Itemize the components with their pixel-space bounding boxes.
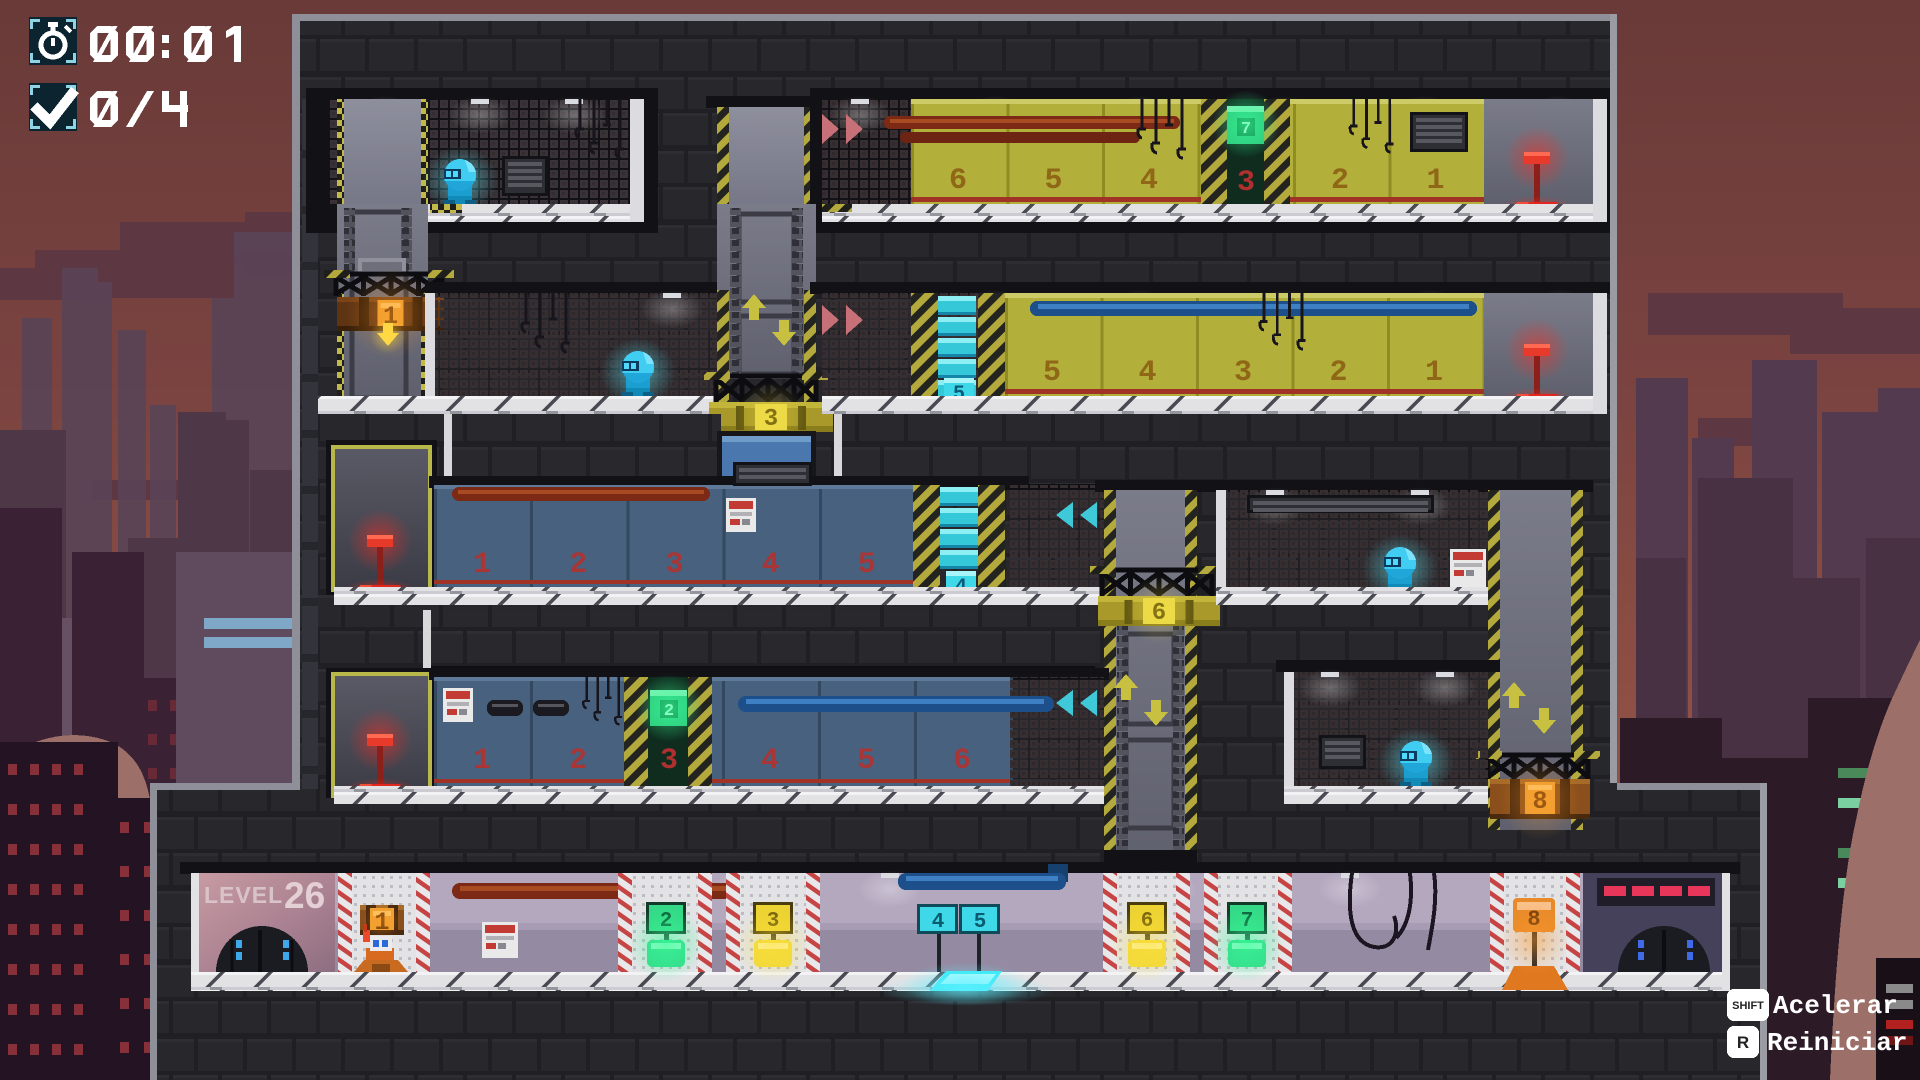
svg-text:1: 1 [473,744,491,778]
svg-text:4: 4 [762,548,780,582]
svg-text:5: 5 [858,548,876,582]
svg-text:3: 3 [1237,166,1255,200]
svg-text:26: 26 [284,875,325,916]
svg-text:4: 4 [1140,164,1158,198]
svg-text:SHIFT: SHIFT [1732,1000,1764,1012]
svg-text:5: 5 [857,744,875,778]
svg-text:4: 4 [761,744,779,778]
svg-text:3: 3 [660,744,678,778]
svg-text:R: R [1737,1033,1749,1052]
svg-text:6: 6 [953,744,971,778]
svg-text:3: 3 [665,548,683,582]
svg-text:4: 4 [1138,356,1156,390]
svg-text:Acelerar: Acelerar [1773,991,1898,1021]
svg-text:4: 4 [932,911,945,934]
svg-text:5: 5 [1044,164,1062,198]
svg-text:LEVEL: LEVEL [204,882,283,908]
svg-text:1: 1 [1426,164,1444,198]
svg-text:5: 5 [1043,356,1061,390]
svg-text:5: 5 [974,911,987,934]
svg-text:2: 2 [1331,164,1349,198]
svg-text:6: 6 [949,164,967,198]
svg-text:2: 2 [1329,356,1347,390]
svg-text:1: 1 [1425,356,1443,390]
svg-text:1: 1 [473,548,491,582]
svg-text:Reiniciar: Reiniciar [1767,1028,1907,1058]
svg-text:2: 2 [569,744,587,778]
svg-text:3: 3 [1234,356,1252,390]
svg-text:2: 2 [569,548,587,582]
